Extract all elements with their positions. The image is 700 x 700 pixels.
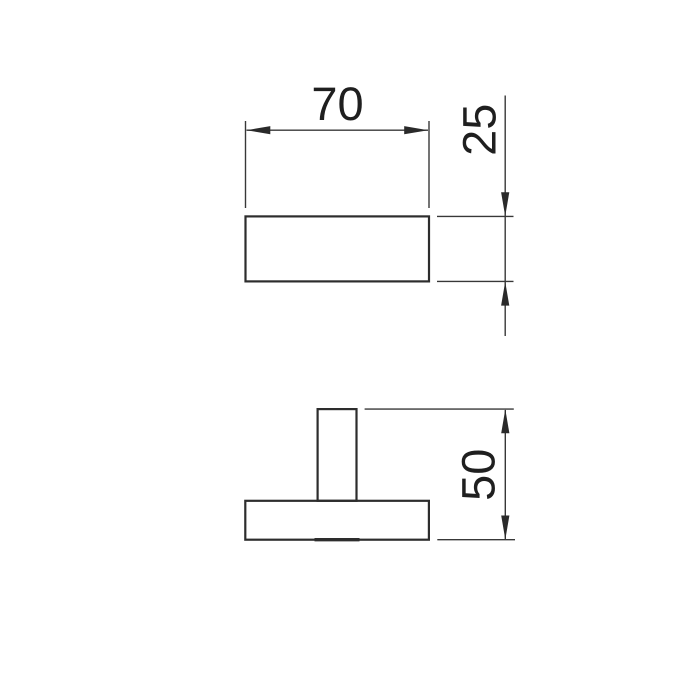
svg-text:25: 25	[453, 104, 506, 156]
svg-text:50: 50	[452, 449, 505, 501]
svg-text:70: 70	[311, 77, 363, 130]
